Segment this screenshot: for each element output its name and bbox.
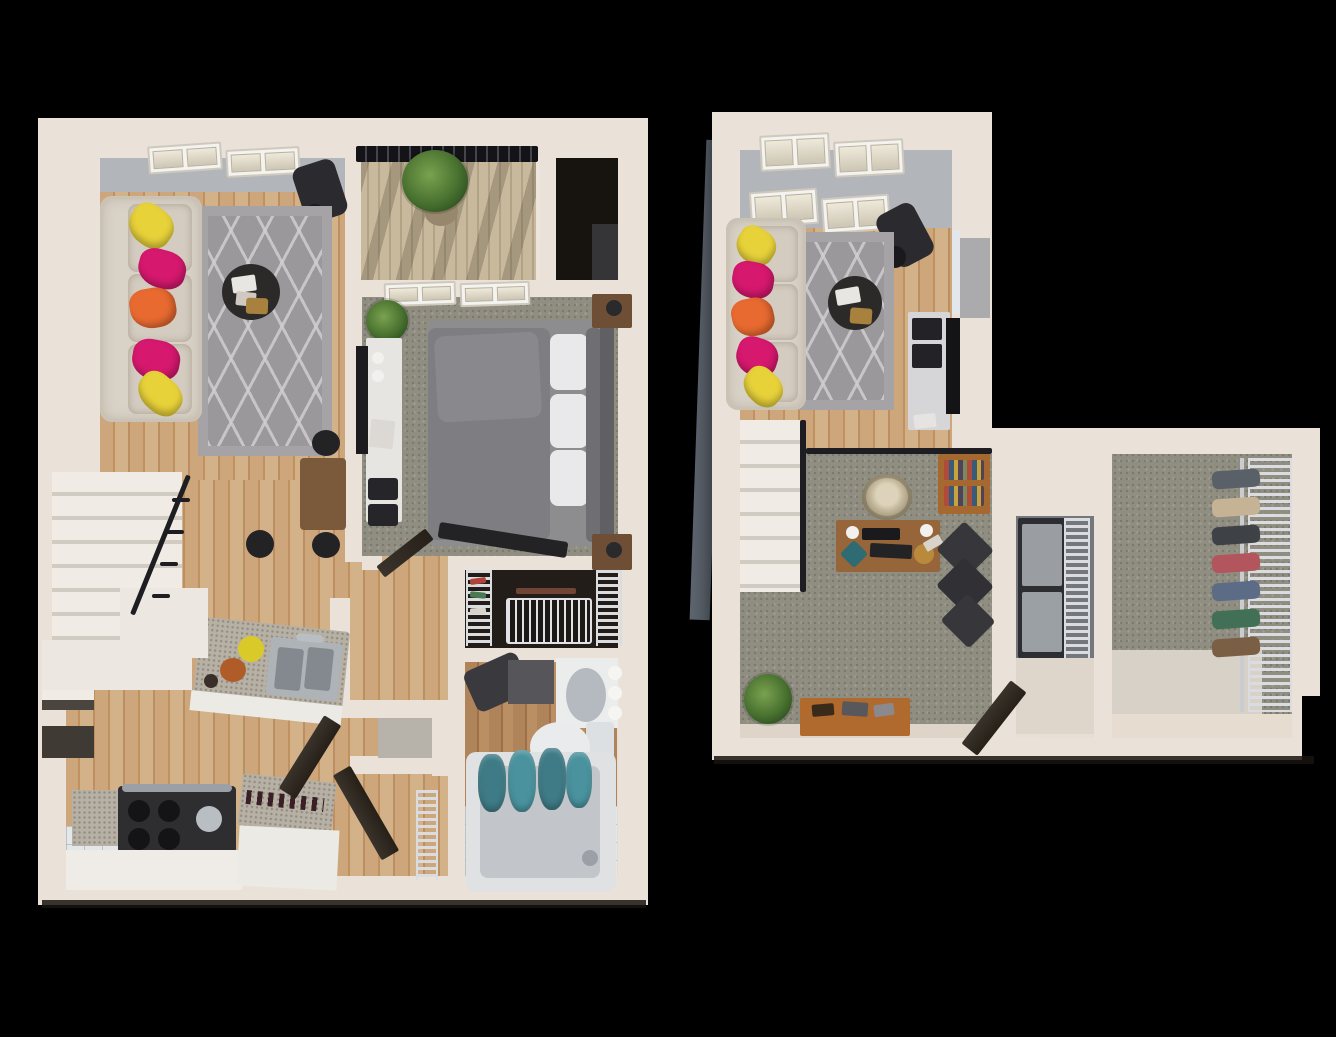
- wall-left: [712, 112, 740, 760]
- window: [833, 138, 905, 178]
- corner-notch: [1302, 696, 1322, 762]
- console-magazine: [913, 413, 936, 429]
- midcloset-wire-shelf: [1064, 518, 1090, 658]
- coffee-table-tray: [849, 307, 872, 324]
- midcloset-cabinet: [1022, 592, 1062, 652]
- second-floor-plan: [0, 0, 1336, 1037]
- midcloset-cabinet: [1022, 524, 1062, 586]
- wall-closet-divider: [1094, 452, 1112, 760]
- window-sliver: [952, 230, 960, 314]
- hanging-clothes: [1211, 580, 1260, 601]
- hanging-clothes: [1211, 608, 1260, 629]
- right-wall-door: [960, 238, 990, 318]
- console-clutter: [842, 701, 869, 717]
- hanging-clothes: [1211, 552, 1260, 573]
- console-clutter: [812, 703, 835, 717]
- speaker: [912, 318, 942, 340]
- hanging-clothes: [1211, 496, 1260, 517]
- hanging-clothes: [1211, 636, 1260, 657]
- hanging-clothes: [1211, 468, 1260, 489]
- window: [759, 132, 831, 172]
- midcloset-floor: [1016, 658, 1094, 734]
- wall-midcloset-top: [1016, 440, 1094, 516]
- hanging-clothes: [1211, 524, 1260, 545]
- desk-laptop: [870, 543, 913, 559]
- stair-railing: [800, 420, 806, 592]
- loft-plant: [744, 674, 792, 724]
- wicker-chair: [862, 474, 912, 520]
- desk-plate: [920, 524, 933, 537]
- bookshelf-books: [944, 460, 984, 480]
- speaker: [912, 344, 942, 368]
- desk-keyboard: [862, 528, 900, 540]
- stairs: [740, 420, 802, 592]
- tv: [946, 318, 960, 414]
- desk-plate: [846, 526, 859, 539]
- floor-plan-rendering: [0, 0, 1336, 1037]
- ground-shadow: [714, 756, 1314, 764]
- bookshelf-books: [944, 486, 984, 506]
